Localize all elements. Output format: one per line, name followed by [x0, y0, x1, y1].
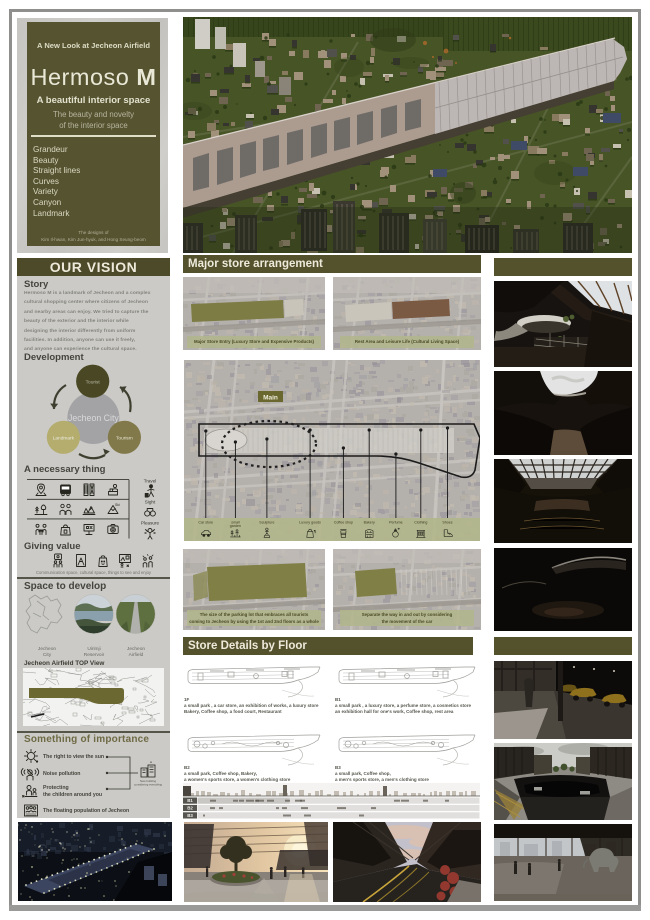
- svg-text:Landmark: Landmark: [53, 436, 75, 442]
- svg-text:Clothing: Clothing: [414, 521, 427, 525]
- svg-text:Ski: Ski: [115, 503, 120, 507]
- svg-text:considering everything: considering everything: [134, 783, 162, 787]
- svg-text:Coffee shop: Coffee shop: [334, 521, 353, 525]
- svg-text:B1: B1: [187, 798, 193, 803]
- svg-text:B2: B2: [187, 806, 193, 811]
- svg-text:Sculpture: Sculpture: [259, 521, 274, 525]
- svg-text:garden: garden: [230, 524, 241, 528]
- svg-text:Bakery: Bakery: [364, 521, 375, 525]
- svg-text:Shoes: Shoes: [442, 521, 452, 525]
- svg-text:Travel: Travel: [144, 479, 157, 484]
- svg-text:Car store: Car store: [198, 521, 213, 525]
- svg-text:Tourist: Tourist: [86, 380, 101, 386]
- svg-text:Pleasure: Pleasure: [141, 521, 160, 526]
- svg-text:B3: B3: [187, 813, 193, 818]
- svg-text:Jecheon City: Jecheon City: [68, 413, 119, 423]
- svg-text:Perfume: Perfume: [389, 521, 403, 525]
- svg-text:Sight: Sight: [145, 500, 156, 505]
- svg-text:Luxury goods: Luxury goods: [299, 521, 321, 525]
- svg-text:Main: Main: [263, 395, 278, 402]
- svg-text:Tourism: Tourism: [116, 436, 133, 442]
